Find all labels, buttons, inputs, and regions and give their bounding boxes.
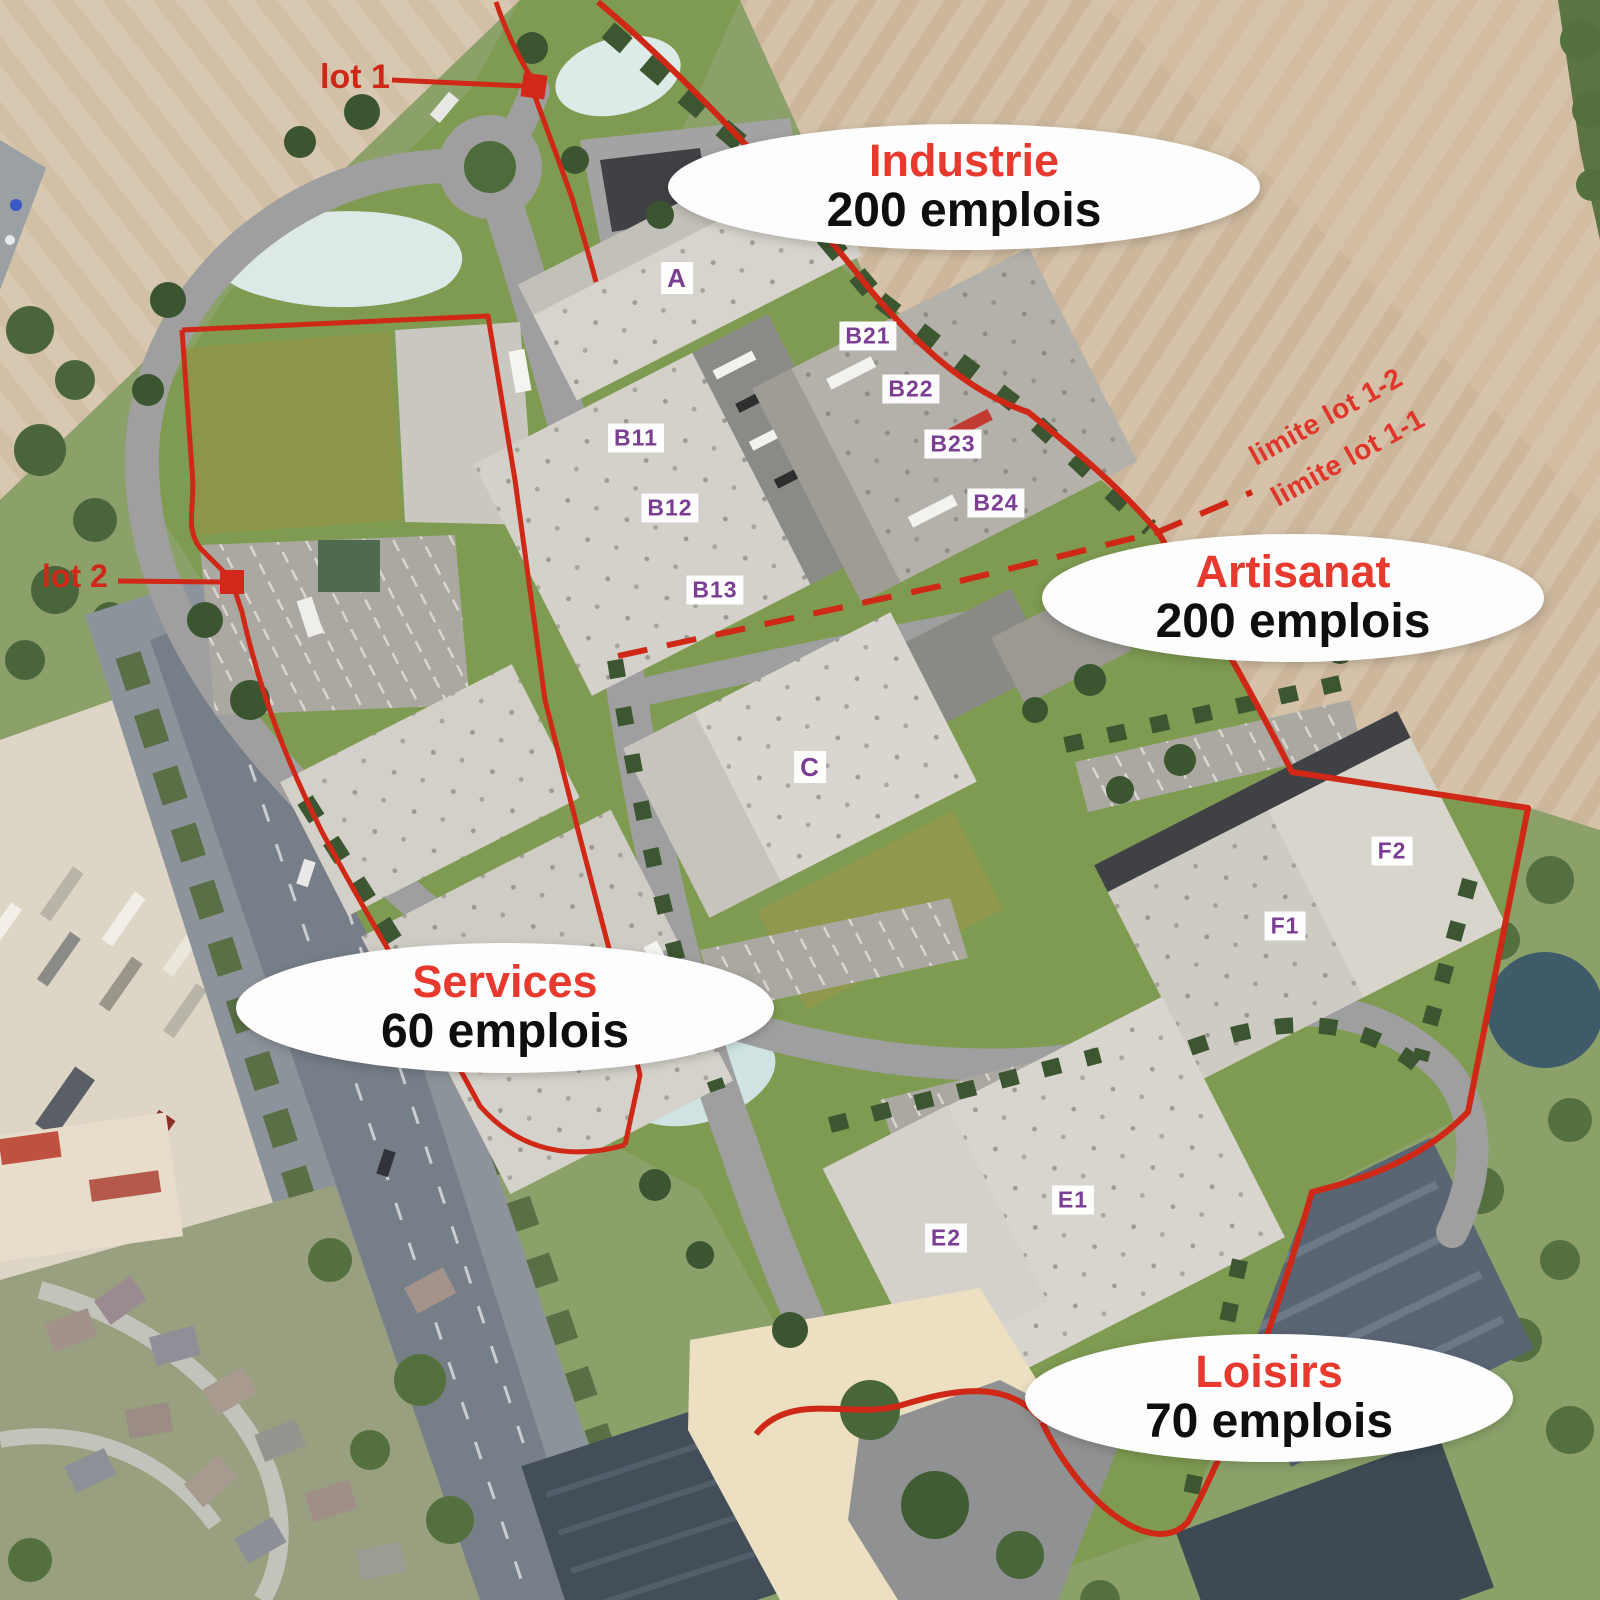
lot2-label: lot 2 bbox=[42, 560, 108, 592]
building-label-B22: B22 bbox=[882, 375, 939, 404]
building-label-B21: B21 bbox=[839, 322, 896, 351]
building-label-B23: B23 bbox=[924, 430, 981, 459]
zone-title: Loisirs bbox=[1195, 1347, 1343, 1397]
zone-bubble-artisanat: Artisanat 200 emplois bbox=[1042, 534, 1544, 662]
zone-bubble-loisirs: Loisirs 70 emplois bbox=[1025, 1334, 1513, 1462]
building-label-E2: E2 bbox=[925, 1224, 967, 1253]
building-label-C: C bbox=[794, 751, 826, 783]
building-label-F2: F2 bbox=[1372, 837, 1413, 866]
zone-bubble-services: Services 60 emplois bbox=[236, 943, 774, 1073]
zone-title: Industrie bbox=[869, 136, 1059, 186]
building-label-B12: B12 bbox=[641, 494, 698, 523]
zone-bubble-industrie: Industrie 200 emplois bbox=[668, 124, 1260, 250]
building-label-B13: B13 bbox=[686, 576, 743, 605]
zone-jobs: 200 emplois bbox=[1156, 596, 1431, 649]
zone-jobs: 200 emplois bbox=[827, 185, 1102, 238]
zone-jobs: 60 emplois bbox=[381, 1006, 629, 1059]
building-label-F1: F1 bbox=[1265, 912, 1306, 941]
building-label-A: A bbox=[661, 262, 693, 294]
building-label-B24: B24 bbox=[967, 489, 1024, 518]
lot1-label: lot 1 bbox=[320, 60, 390, 94]
building-label-B11: B11 bbox=[608, 424, 664, 453]
zone-title: Artisanat bbox=[1195, 547, 1390, 597]
site-plan-map: lot 1 lot 2 limite lot 1-2 limite lot 1-… bbox=[0, 0, 1600, 1600]
annotations-overlay: lot 1 lot 2 limite lot 1-2 limite lot 1-… bbox=[0, 0, 1600, 1600]
building-label-E1: E1 bbox=[1052, 1186, 1094, 1215]
zone-jobs: 70 emplois bbox=[1145, 1396, 1393, 1449]
zone-title: Services bbox=[412, 957, 597, 1007]
